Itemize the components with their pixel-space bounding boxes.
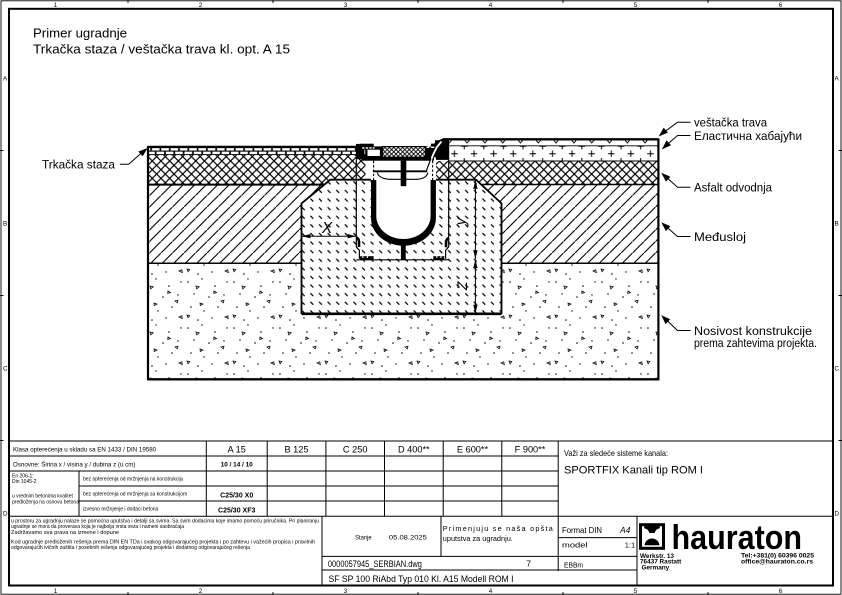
svg-text:7: 7 — [526, 559, 531, 569]
svg-text:10 / 14 / 10: 10 / 14 / 10 — [221, 462, 253, 469]
svg-text:F 900**: F 900** — [515, 445, 546, 455]
svg-text:1: 1 — [54, 2, 58, 9]
svg-text:B: B — [835, 221, 839, 228]
svg-text:Zadržavamo sva prava na izmene: Zadržavamo sva prava na izmene i dopune — [11, 530, 119, 536]
svg-text:veštačka trava: veštačka trava — [694, 116, 767, 130]
svg-text:05.08.2025: 05.08.2025 — [389, 534, 427, 541]
svg-text:D: D — [835, 511, 840, 518]
svg-text:Trkačka staza: Trkačka staza — [42, 158, 115, 172]
svg-text:Еластична хабајући: Еластична хабајући — [694, 129, 802, 143]
svg-text:5: 5 — [634, 2, 638, 9]
svg-text:4: 4 — [489, 2, 493, 9]
svg-text:E 600**: E 600** — [457, 445, 489, 455]
svg-text:6: 6 — [779, 588, 783, 595]
svg-text:C 250: C 250 — [343, 445, 368, 455]
svg-text:predloženja na osnovu betona: predloženja na osnovu betona — [12, 500, 79, 506]
svg-text:3: 3 — [344, 2, 348, 9]
svg-text:C: C — [3, 366, 8, 373]
svg-text:4: 4 — [489, 588, 493, 595]
svg-text:Osnovne: Širina x / visina y /: Osnovne: Širina x / visina y / dubina z … — [13, 462, 135, 469]
svg-text:C: C — [835, 366, 840, 373]
svg-text:prema zahtevima projekta.: prema zahtevima projekta. — [694, 336, 817, 350]
svg-text:odgovarajućih ivičnih zaštita: odgovarajućih ivičnih zaštita i posebnih… — [11, 545, 250, 551]
svg-text:Z: Z — [454, 281, 470, 291]
svg-text:Primer ugradnje: Primer ugradnje — [33, 26, 127, 41]
svg-text:Din 1045-2: Din 1045-2 — [12, 479, 37, 485]
svg-text:1: 1 — [54, 588, 58, 595]
svg-text:X: X — [321, 220, 333, 237]
svg-text:C25/30 X0: C25/30 X0 — [220, 493, 253, 500]
svg-text:office@hauraton.co.rs: office@hauraton.co.rs — [741, 558, 814, 565]
svg-text:izvesno mržnjenje i dodaci bet: izvesno mržnjenje i dodaci betona — [83, 507, 159, 513]
svg-text:Format DIN: Format DIN — [562, 526, 602, 535]
svg-text:Trkačka staza / veštačka trava: Trkačka staza / veštačka trava kl. opt. … — [33, 42, 290, 57]
svg-text:SPORTFIX Kanali tip ROM I: SPORTFIX Kanali tip ROM I — [564, 465, 703, 477]
svg-text:Germany: Germany — [642, 564, 670, 571]
svg-text:2: 2 — [199, 2, 203, 9]
svg-text:C25/30 XF3: C25/30 XF3 — [218, 508, 255, 515]
svg-text:Važi za sledeće sisteme kanala: Važi za sledeće sisteme kanala: — [564, 449, 668, 458]
svg-text:model: model — [562, 541, 588, 550]
svg-text:Klasa opterećenja u skladu sa: Klasa opterećenja u skladu sa EN 1433 / … — [13, 447, 157, 454]
svg-text:A 15: A 15 — [227, 445, 245, 455]
svg-text:bez opterećenja od mržnjenja n: bez opterećenja od mržnjenja na konstruk… — [83, 477, 184, 483]
svg-text:1:1: 1:1 — [625, 541, 635, 550]
svg-text:6: 6 — [779, 2, 783, 9]
svg-text:B: B — [3, 221, 7, 228]
svg-text:uputstva za ugradnju.: uputstva za ugradnju. — [443, 534, 513, 543]
svg-text:2: 2 — [199, 588, 203, 595]
svg-text:D 400**: D 400** — [398, 445, 430, 455]
svg-text:Stanje: Stanje — [355, 534, 372, 541]
svg-text:Međusloj: Međusloj — [694, 230, 746, 244]
svg-text:EBBm: EBBm — [564, 560, 583, 569]
svg-text:3: 3 — [344, 588, 348, 595]
svg-text:0000057945_SERBIAN.dwg: 0000057945_SERBIAN.dwg — [328, 559, 422, 570]
svg-text:bez opterećenja od mržnjenja s: bez opterećenja od mržnjenja sa konstruk… — [83, 492, 187, 498]
svg-text:Primenjuju se naša opšta: Primenjuju se naša opšta — [443, 524, 554, 533]
svg-text:A4: A4 — [619, 525, 631, 535]
svg-text:D: D — [3, 511, 8, 518]
svg-text:5: 5 — [634, 588, 638, 595]
svg-text:B 125: B 125 — [284, 445, 308, 455]
svg-text:SF SP 100 RiAbd Typ 010 Kl.: SF SP 100 RiAbd Typ 010 Kl. A15 Modell R… — [329, 574, 514, 584]
svg-text:Asfalt odvodnja: Asfalt odvodnja — [694, 181, 772, 195]
